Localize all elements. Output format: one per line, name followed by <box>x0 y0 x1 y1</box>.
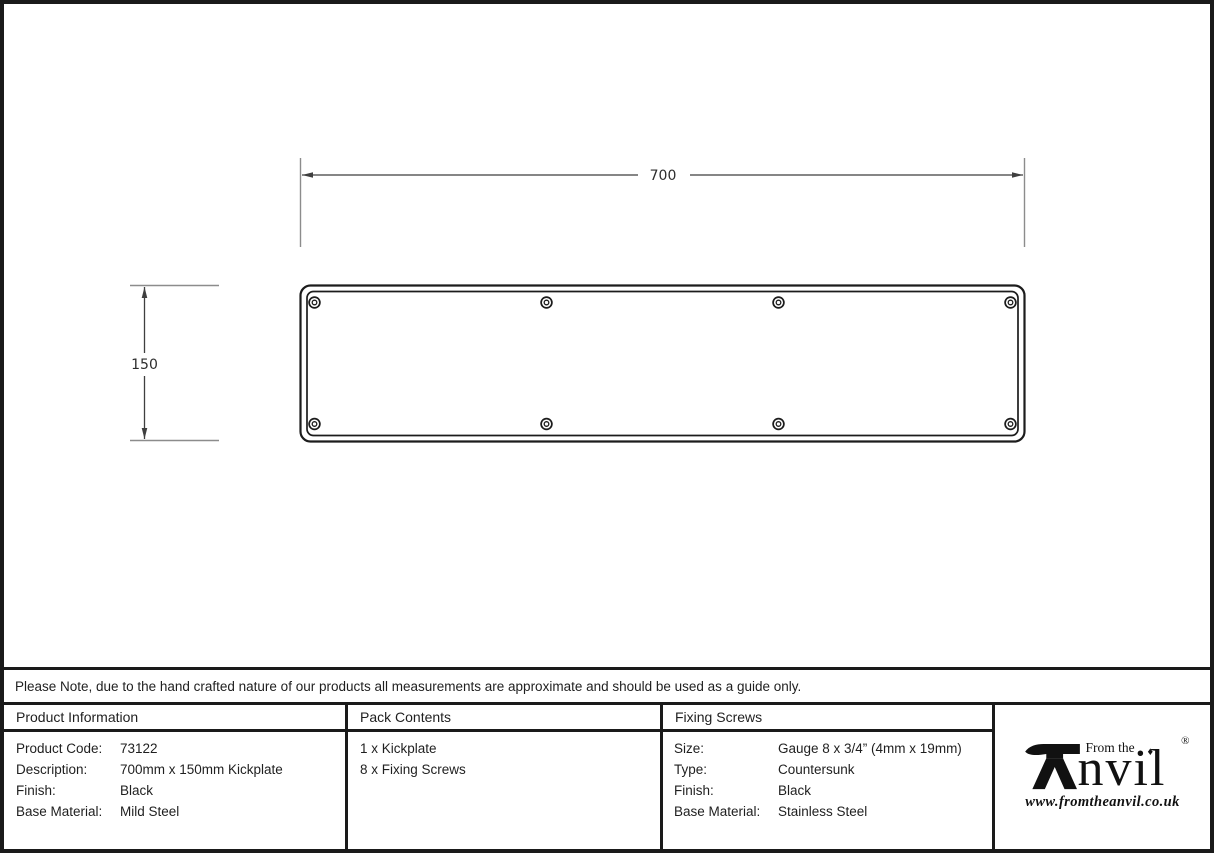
description-value: 700mm x 150mm Kickplate <box>120 759 283 780</box>
arrow-left-icon <box>302 172 313 178</box>
measurement-note-text: Please Note, due to the hand crafted nat… <box>15 679 801 694</box>
base-material-value: Mild Steel <box>120 801 179 822</box>
table-row: Description: 700mm x 150mm Kickplate <box>16 759 345 780</box>
finish-value: Black <box>120 780 153 801</box>
screw-hole <box>309 419 320 430</box>
width-dimension-label: 700 <box>650 168 677 184</box>
pack-contents-header: Pack Contents <box>348 705 660 732</box>
height-dimension-label: 150 <box>131 357 158 373</box>
screw-base-material-value: Stainless Steel <box>778 801 867 822</box>
product-table: Product Information Product Code: 73122 … <box>4 705 1210 849</box>
from-the-anvil-logo: nvil From the ♦ ® www.fromtheanvil.co.uk <box>1024 743 1182 811</box>
table-row: Base Material: Mild Steel <box>16 801 345 822</box>
width-dimension: 700 <box>301 158 1025 247</box>
screw-hole <box>1005 419 1016 430</box>
info-block: Please Note, due to the hand crafted nat… <box>4 667 1210 849</box>
diamond-icon: ♦ <box>1148 746 1154 758</box>
anvil-icon <box>1024 743 1082 791</box>
list-item: 8 x Fixing Screws <box>360 759 660 780</box>
table-row: Finish: Black <box>674 780 992 801</box>
screw-hole <box>773 297 784 308</box>
arrow-up-icon <box>142 287 148 298</box>
description-label: Description: <box>16 759 120 780</box>
height-dimension: 150 <box>130 286 219 441</box>
pack-contents-header-label: Pack Contents <box>360 709 451 725</box>
spec-sheet-page: 700 150 <box>0 0 1214 853</box>
measurement-note-row: Please Note, due to the hand crafted nat… <box>4 670 1210 705</box>
screw-hole <box>541 297 552 308</box>
screw-hole <box>1005 297 1016 308</box>
pack-contents-cell: Pack Contents 1 x Kickplate 8 x Fixing S… <box>348 705 663 849</box>
finish-label: Finish: <box>16 780 120 801</box>
table-row: Type: Countersunk <box>674 759 992 780</box>
arrow-right-icon <box>1012 172 1023 178</box>
product-information-header: Product Information <box>4 705 345 732</box>
table-row: Product Code: 73122 <box>16 738 345 759</box>
logo-tagline: From the <box>1086 740 1135 756</box>
screw-finish-value: Black <box>778 780 811 801</box>
kickplate-outer-edge <box>301 286 1025 442</box>
screw-type-value: Countersunk <box>778 759 855 780</box>
screw-hole <box>773 419 784 430</box>
screw-type-label: Type: <box>674 759 778 780</box>
registered-trademark-icon: ® <box>1181 735 1189 747</box>
product-information-body: Product Code: 73122 Description: 700mm x… <box>4 732 345 822</box>
product-information-header-label: Product Information <box>16 709 138 725</box>
fixing-screws-body: Size: Gauge 8 x 3/4” (4mm x 19mm) Type: … <box>663 732 992 822</box>
table-row: Base Material: Stainless Steel <box>674 801 992 822</box>
screw-size-label: Size: <box>674 738 778 759</box>
base-material-label: Base Material: <box>16 801 120 822</box>
screw-base-material-label: Base Material: <box>674 801 778 822</box>
kickplate-outline <box>301 286 1025 442</box>
product-information-cell: Product Information Product Code: 73122 … <box>4 705 348 849</box>
screw-hole <box>541 419 552 430</box>
brand-logo-cell: nvil From the ♦ ® www.fromtheanvil.co.uk <box>995 705 1210 849</box>
table-row: Size: Gauge 8 x 3/4” (4mm x 19mm) <box>674 738 992 759</box>
pack-contents-body: 1 x Kickplate 8 x Fixing Screws <box>348 732 660 780</box>
fixing-screws-header: Fixing Screws <box>663 705 992 732</box>
arrow-down-icon <box>142 428 148 439</box>
table-row: Finish: Black <box>16 780 345 801</box>
screw-finish-label: Finish: <box>674 780 778 801</box>
product-code-label: Product Code: <box>16 738 120 759</box>
product-code-value: 73122 <box>120 738 158 759</box>
list-item: 1 x Kickplate <box>360 738 660 759</box>
screw-hole <box>309 297 320 308</box>
kickplate-technical-drawing: 700 150 <box>4 4 1210 663</box>
fixing-screws-cell: Fixing Screws Size: Gauge 8 x 3/4” (4mm … <box>663 705 995 849</box>
screw-size-value: Gauge 8 x 3/4” (4mm x 19mm) <box>778 738 962 759</box>
fixing-screws-header-label: Fixing Screws <box>675 709 762 725</box>
